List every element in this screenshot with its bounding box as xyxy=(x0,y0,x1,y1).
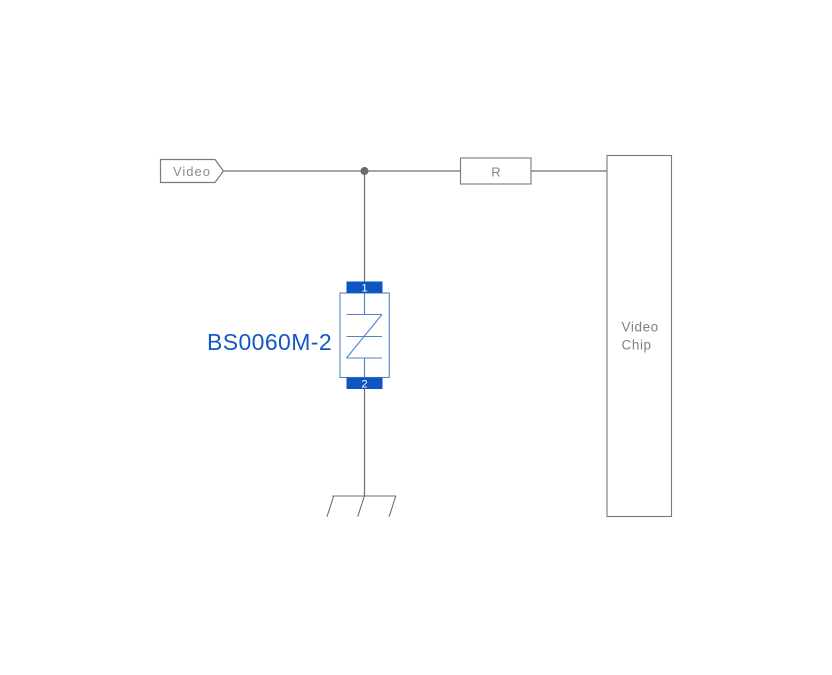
svg-text:Video: Video xyxy=(173,164,211,179)
svg-text:1: 1 xyxy=(361,282,367,294)
svg-text:2: 2 xyxy=(361,379,367,391)
svg-text:BS0060M-2: BS0060M-2 xyxy=(207,329,332,355)
svg-text:Video: Video xyxy=(622,320,659,335)
svg-text:Chip: Chip xyxy=(622,338,652,353)
svg-text:R: R xyxy=(491,164,500,179)
